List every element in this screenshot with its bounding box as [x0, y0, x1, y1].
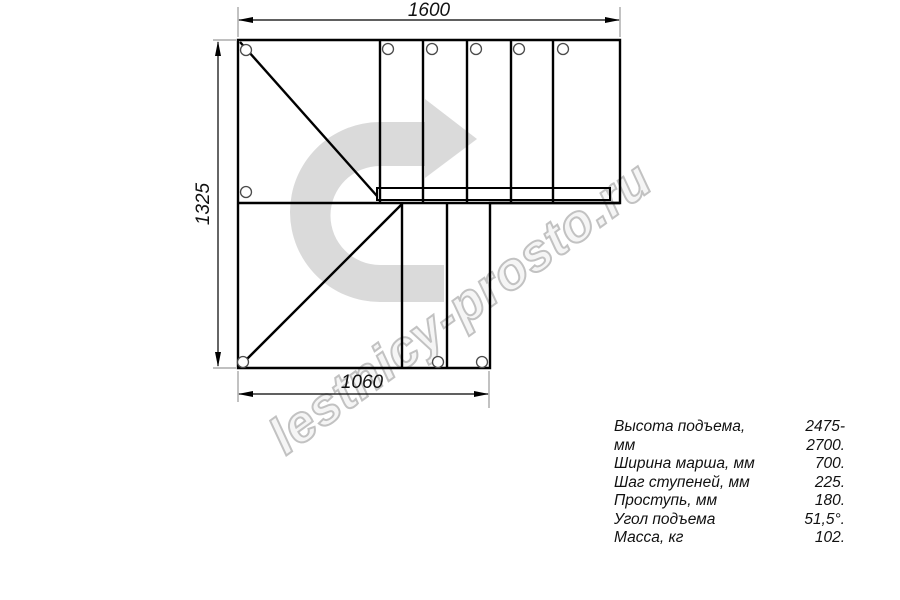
dimension-label-top: 1600	[408, 0, 451, 21]
dimension-arrowheads	[215, 17, 620, 397]
spec-label: Проступь, мм	[614, 492, 717, 511]
hole-marker-icon	[477, 357, 488, 368]
spec-label: Ширина марша, мм	[614, 455, 755, 474]
dimension-label-bottom: 1060	[341, 372, 384, 393]
spec-row: Масса, кг 102.	[614, 529, 845, 548]
spec-row: Ширина марша, мм 700.	[614, 455, 845, 474]
arrowhead-icon	[215, 41, 221, 56]
spec-row: Угол подъема 51,5°.	[614, 511, 845, 530]
spec-value: 51,5°.	[804, 511, 845, 530]
hole-marker-icon	[241, 187, 252, 198]
hole-marker-icon	[558, 44, 569, 55]
spec-label: Шаг ступеней, мм	[614, 474, 750, 493]
landing-diagonal-line	[240, 204, 402, 366]
spec-value: 102.	[815, 529, 845, 548]
staircase-plan	[238, 40, 620, 368]
spec-value: 180.	[815, 492, 845, 511]
spec-row: Высота подъема, мм 2475-2700.	[614, 418, 845, 455]
spec-table: Высота подъема, мм 2475-2700. Ширина мар…	[614, 418, 845, 548]
dimension-label-left: 1325	[193, 182, 214, 225]
spec-label: Угол подъема	[614, 511, 715, 530]
dimension-lines	[218, 20, 619, 394]
spec-row: Шаг ступеней, мм 225.	[614, 474, 845, 493]
arrowhead-icon	[474, 391, 489, 397]
arrowhead-icon	[238, 391, 253, 397]
stairs-drawing-page: lestnicy-prosto.ru	[0, 0, 900, 600]
spec-value: 225.	[815, 474, 845, 493]
spec-label: Масса, кг	[614, 529, 683, 548]
hole-marker-icon	[433, 357, 444, 368]
arrowhead-icon	[215, 352, 221, 367]
hole-marker-icon	[471, 44, 482, 55]
landing-diagonal-line	[240, 42, 377, 196]
arrowhead-icon	[238, 17, 253, 23]
hole-marker-icon	[427, 44, 438, 55]
arrowhead-icon	[605, 17, 620, 23]
spec-label: Высота подъема, мм	[614, 418, 768, 455]
spec-value: 2475-2700.	[768, 418, 845, 455]
hole-marker-icon	[238, 357, 249, 368]
extension-lines	[213, 7, 620, 408]
spec-value: 700.	[815, 455, 845, 474]
hole-marker-icon	[514, 44, 525, 55]
hole-marker-icon	[241, 45, 252, 56]
spec-row: Проступь, мм 180.	[614, 492, 845, 511]
stringer-bar	[377, 188, 610, 200]
hole-marker-icon	[383, 44, 394, 55]
